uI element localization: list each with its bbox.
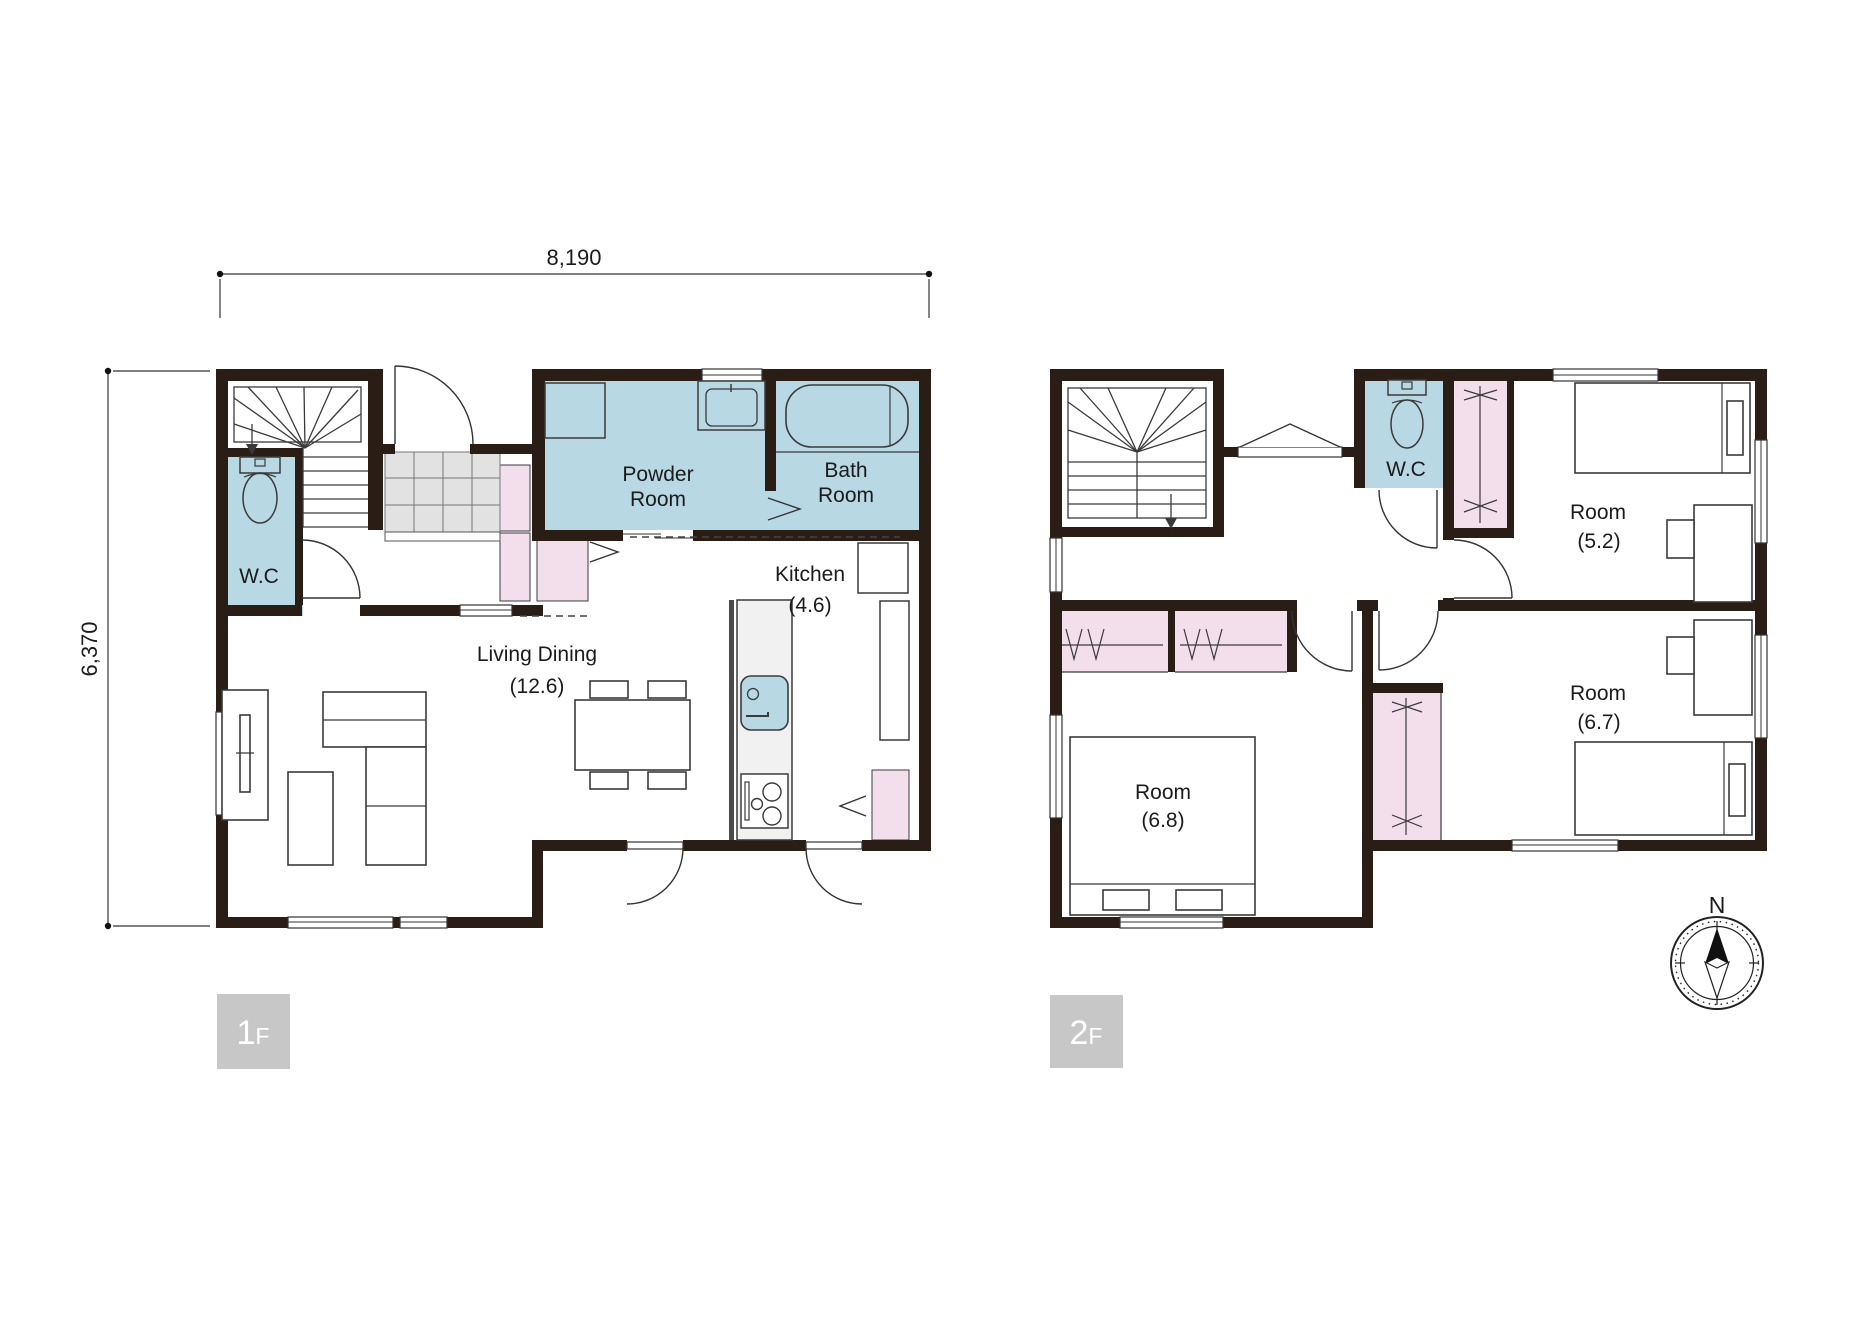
- hall-door-icon: [302, 540, 360, 598]
- floor-badge-1f: 1F: [217, 994, 290, 1069]
- entrance-door-icon: [395, 366, 473, 444]
- kitchen-counter-icon: [729, 600, 792, 840]
- kitchen-back-door-icon: [627, 842, 683, 904]
- kitchen-label: Kitchen: [775, 563, 845, 586]
- bed-single-icon: [1575, 742, 1752, 835]
- wc2-door-icon: [1379, 490, 1437, 548]
- closet-folding-door-icon: [590, 542, 618, 562]
- window-icon: [288, 917, 393, 928]
- coffee-table-icon: [288, 772, 333, 865]
- room68-size-label: (6.8): [1141, 809, 1184, 832]
- bedroom52-door-icon: [1454, 540, 1512, 598]
- sliding-opening: [623, 530, 693, 541]
- living-dining-label: Living Dining: [477, 643, 597, 666]
- floor-plan-canvas: W.C Powder Room Bath Room Kitchen (4.6) …: [0, 0, 1852, 1320]
- badge-1f-suffix: F: [255, 1023, 269, 1049]
- compass-icon: N: [1671, 892, 1763, 1009]
- window-icon: [1120, 917, 1223, 928]
- wc2-label: W.C: [1386, 458, 1426, 481]
- powder-room-label-2: Room: [630, 488, 686, 511]
- dimension-left: 6,370: [77, 368, 210, 929]
- desk-icon: [1667, 505, 1752, 602]
- floor-1f: W.C Powder Room Bath Room Kitchen (4.6) …: [216, 366, 931, 928]
- sofa-icon: [323, 692, 426, 865]
- bedroom67-door-icon: [1379, 611, 1438, 670]
- refrigerator-icon: [858, 543, 908, 593]
- room52-size-label: (5.2): [1577, 530, 1620, 553]
- floor-2f: W.C Room (5.2) Room (6.7) Room (6.8): [1050, 369, 1767, 928]
- dining-set-icon: [575, 681, 690, 789]
- badge-2f-suffix: F: [1088, 1023, 1102, 1049]
- width-dimension-label: 8,190: [546, 245, 601, 270]
- badge-1f-number: 1: [237, 1014, 256, 1052]
- room52-label: Room: [1570, 501, 1626, 524]
- living-dining-size-label: (12.6): [510, 675, 565, 698]
- room67-label: Room: [1570, 682, 1626, 705]
- window-icon: [1553, 369, 1658, 381]
- dimension-top: 8,190: [217, 245, 932, 318]
- height-dimension-label: 6,370: [77, 621, 102, 676]
- powder-room-label-1: Powder: [622, 463, 693, 486]
- toilet-icon: [240, 457, 280, 523]
- desk-icon: [1667, 620, 1752, 715]
- room68-label: Room: [1135, 781, 1191, 804]
- badge-2f-number: 2: [1070, 1014, 1089, 1052]
- wc-label: W.C: [239, 565, 279, 588]
- pantry-folding-door-icon: [840, 796, 866, 816]
- vanity-sink-icon: [698, 381, 765, 430]
- room67-size-label: (6.7): [1577, 711, 1620, 734]
- floor-badge-2f: 2F: [1050, 995, 1123, 1068]
- bedroom68-door-icon: [1292, 611, 1352, 671]
- kitchen-size-label: (4.6): [788, 594, 831, 617]
- bathtub-icon: [776, 385, 919, 452]
- stairs-2f: [1068, 388, 1206, 529]
- window-icon: [1512, 840, 1618, 851]
- window-icon: [1050, 715, 1062, 818]
- window-icon: [1755, 440, 1767, 543]
- window-icon: [1755, 635, 1767, 738]
- window-icon: [702, 369, 762, 381]
- tv-board-icon: [222, 690, 268, 820]
- window-icon: [1050, 538, 1062, 592]
- north-label: N: [1709, 892, 1726, 918]
- window-icon: [400, 917, 447, 928]
- bed-single-icon: [1575, 383, 1750, 473]
- toilet-icon: [1388, 380, 1426, 448]
- window-icon: [460, 605, 512, 616]
- stair-treads: [303, 448, 368, 527]
- stair-direction-arrow: [1165, 494, 1177, 529]
- bath-room-label-1: Bath: [824, 459, 867, 482]
- entrance-tiles: [385, 452, 500, 541]
- floor-plan-page: W.C Powder Room Bath Room Kitchen (4.6) …: [0, 0, 1852, 1320]
- gable-window-icon: [1238, 424, 1342, 457]
- bath-room-label-2: Room: [818, 484, 874, 507]
- kitchen-side-door-icon: [806, 842, 862, 904]
- kitchen-cabinet-icon: [880, 601, 909, 740]
